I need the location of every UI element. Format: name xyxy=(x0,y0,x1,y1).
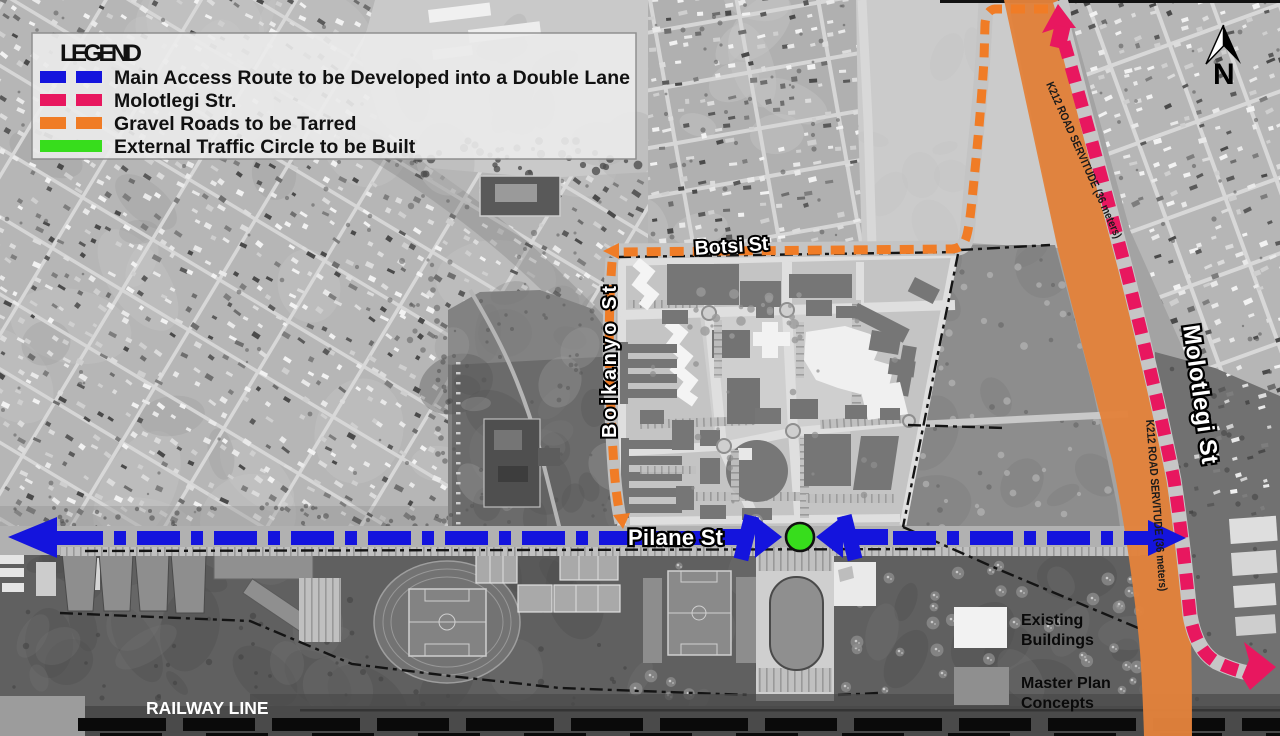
svg-text:Buildings: Buildings xyxy=(1021,632,1094,649)
svg-text:Molotlegi Str.: Molotlegi Str. xyxy=(114,90,236,112)
svg-text:N: N xyxy=(1213,58,1235,91)
svg-text:Main Access Route to be Develo: Main Access Route to be Developed into a… xyxy=(114,67,630,89)
svg-text:Existing: Existing xyxy=(1021,612,1083,629)
svg-text:RAILWAY LINE: RAILWAY LINE xyxy=(146,698,269,718)
svg-text:Pilane St: Pilane St xyxy=(628,525,724,550)
svg-text:Gravel Roads to be Tarred: Gravel Roads to be Tarred xyxy=(114,113,356,135)
svg-text:Boikanyo St: Boikanyo St xyxy=(599,286,621,438)
svg-text:External Traffic Circle to be: External Traffic Circle to be Built xyxy=(114,136,416,158)
svg-text:Master Plan: Master Plan xyxy=(1021,675,1111,692)
svg-text:LEGEND: LEGEND xyxy=(60,40,142,67)
svg-text:Concepts: Concepts xyxy=(1021,695,1094,712)
